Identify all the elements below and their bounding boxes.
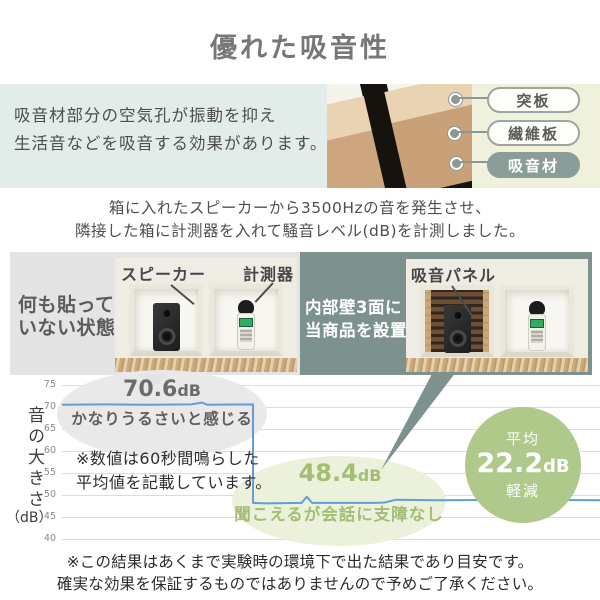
after-photo: 吸音パネル <box>406 259 588 372</box>
connector-line-fiberboard <box>455 131 488 133</box>
y-tick-label: 70 <box>36 401 56 412</box>
sound-absorption-infographic: 優れた吸音性 吸音材部分の空気孔が振動を抑え 生活音などを吸音する効果があります… <box>0 0 600 600</box>
reduction-badge: 平均 22.2dB 軽減 <box>465 407 581 523</box>
label-absorber: 吸音材 <box>508 155 559 176</box>
y-tick-label: 60 <box>36 445 56 456</box>
speaker-label: スピーカー <box>121 261 206 285</box>
meter-screen <box>239 318 253 327</box>
label-pill-fiberboard: 繊維板 <box>487 120 580 146</box>
meter-body <box>237 313 255 350</box>
meter-body <box>528 314 546 351</box>
connector-dot-absorber <box>450 157 463 170</box>
label-veneer: 突板 <box>516 90 550 111</box>
intro-line-2: 生活音などを吸音する効果があります。 <box>14 130 327 158</box>
intro-line-1: 吸音材部分の空気孔が振動を抑え <box>14 102 327 130</box>
y-tick-label: 65 <box>36 423 56 434</box>
experiment-desc-line-2: 隣接した箱に計測器を入れて騒音レベル(dB)を計測しました。 <box>0 220 600 243</box>
meter-buttons <box>240 329 252 342</box>
connector-dot-fiberboard <box>448 127 461 140</box>
plywood-base <box>406 358 588 372</box>
connector-line-absorber <box>457 161 488 163</box>
label-pill-veneer: 突板 <box>487 87 580 113</box>
sound-meter <box>527 301 547 353</box>
badge-value: 22.2dB <box>476 449 569 482</box>
meter-screen <box>530 319 544 328</box>
sound-meter <box>236 300 256 352</box>
before-panel-label: 何も貼って いない状態 <box>18 294 116 340</box>
before-db-caption: かなりうるさいと感じる <box>62 407 262 429</box>
y-tick-label: 40 <box>36 533 56 544</box>
after-db-value: 48.4dB <box>240 459 440 487</box>
after-label-line-2: 当商品を設置 <box>305 319 407 342</box>
before-db-value: 70.6dB <box>62 377 262 402</box>
after-panel-label: 内部壁3面に 当商品を設置 <box>305 296 407 342</box>
connector-dot-veneer <box>449 93 462 106</box>
y-tick-label: 75 <box>36 379 56 390</box>
disclaimer-line-1: ※この結果はあくまで実験時の環境下で出た結果であり目安です。 <box>0 551 600 573</box>
label-pill-absorber: 吸音材 <box>487 152 580 178</box>
label-fiberboard: 繊維板 <box>508 123 559 144</box>
meter-label: 計測器 <box>243 261 294 285</box>
after-db-caption: 聞こえるが会話に支障なし <box>226 501 452 525</box>
before-label-line-2: いない状態 <box>18 317 116 340</box>
before-label-line-1: 何も貼って <box>18 294 116 317</box>
y-tick-label: 55 <box>36 467 56 478</box>
experiment-description: 箱に入れたスピーカーから3500Hzの音を発生させ、 隣接した箱に計測器を入れて… <box>0 197 600 243</box>
speaker <box>153 303 180 351</box>
after-pointer-wedge <box>381 372 456 470</box>
y-tick-label: 45 <box>36 511 56 522</box>
before-photo: スピーカー 計測器 <box>115 258 297 372</box>
disclaimer: ※この結果はあくまで実験時の環境下で出た結果であり目安です。 確実な効果を保証す… <box>0 551 600 595</box>
panel-label: 吸音パネル <box>411 262 496 286</box>
connector-line-veneer <box>456 97 488 99</box>
experiment-desc-line-1: 箱に入れたスピーカーから3500Hzの音を発生させ、 <box>0 197 600 220</box>
badge-top-text: 平均 <box>506 430 540 449</box>
y-tick-label: 50 <box>36 489 56 500</box>
badge-bottom-text: 軽減 <box>506 482 540 501</box>
intro-text: 吸音材部分の空気孔が振動を抑え 生活音などを吸音する効果があります。 <box>14 102 327 158</box>
meter-buttons <box>531 330 543 343</box>
after-label-line-1: 内部壁3面に <box>305 296 407 319</box>
speaker <box>444 305 471 353</box>
page-title: 優れた吸音性 <box>0 26 600 65</box>
disclaimer-line-2: 確実な効果を保証するものではありませんので予めご了承ください。 <box>0 573 600 595</box>
